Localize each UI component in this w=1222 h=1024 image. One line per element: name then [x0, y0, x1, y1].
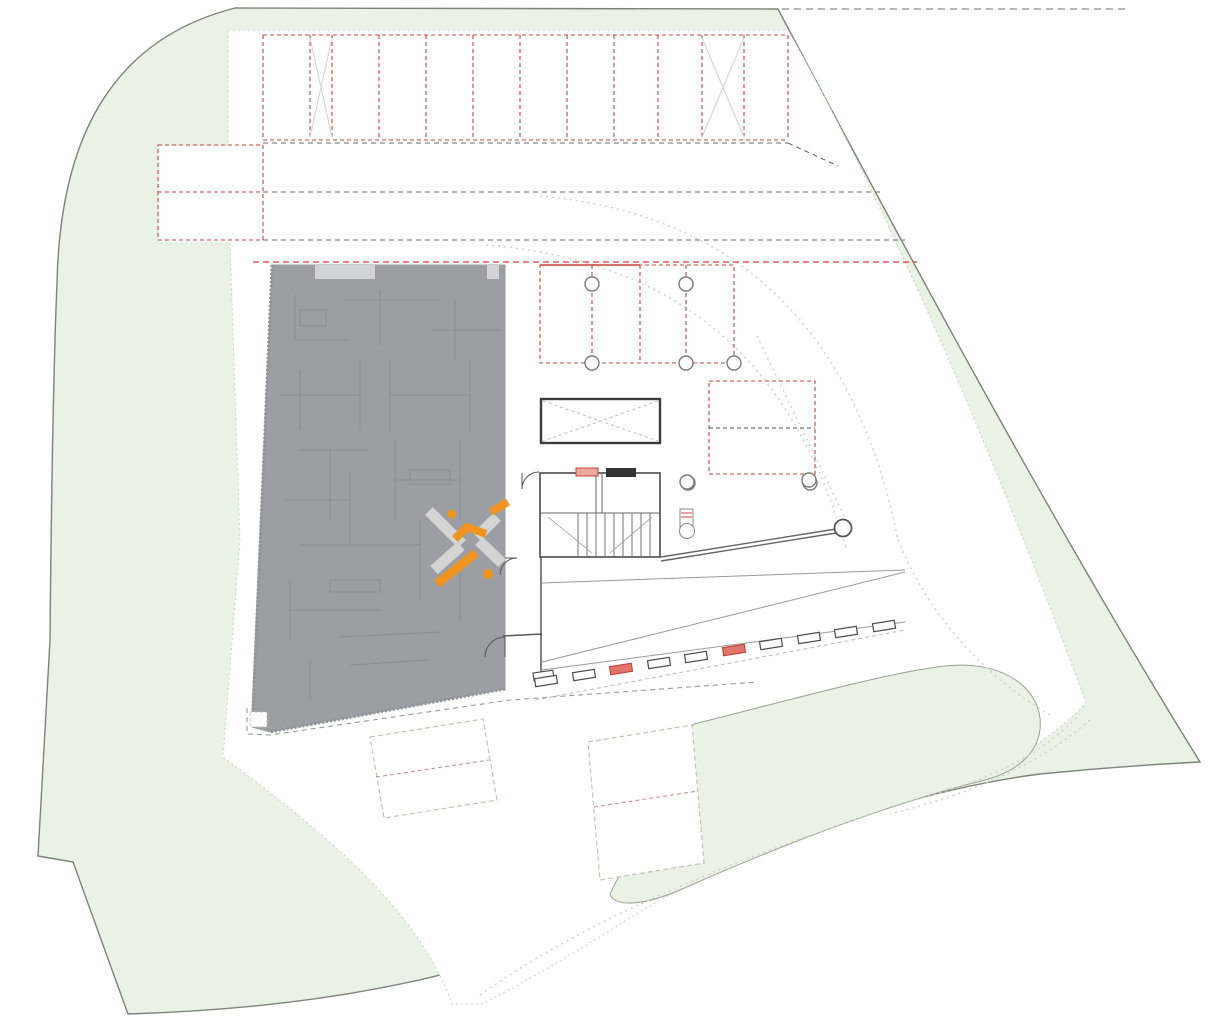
site-plan-drawing [0, 0, 1222, 1024]
canopy-post [727, 356, 741, 370]
building-top-opening [487, 265, 499, 279]
stair-door-marker-red [576, 468, 598, 476]
building-footprint [250, 265, 505, 732]
barrier-pivot [835, 520, 852, 537]
canopy-post [679, 277, 693, 291]
ticket-machine-base [680, 524, 695, 539]
canopy-post [679, 356, 693, 370]
building-corner-notch [250, 712, 267, 727]
future-bay-outline [588, 725, 704, 880]
stair-core-walls [540, 473, 660, 557]
canopy-post [585, 277, 599, 291]
column-circle [680, 475, 694, 489]
canopy-post [585, 356, 599, 370]
building-mass [252, 265, 505, 732]
column-circle [802, 473, 816, 487]
building-top-opening [315, 265, 375, 279]
shaft-box [541, 399, 660, 443]
site-plan-canvas [0, 0, 1222, 1024]
elevator-header-black [606, 468, 636, 477]
